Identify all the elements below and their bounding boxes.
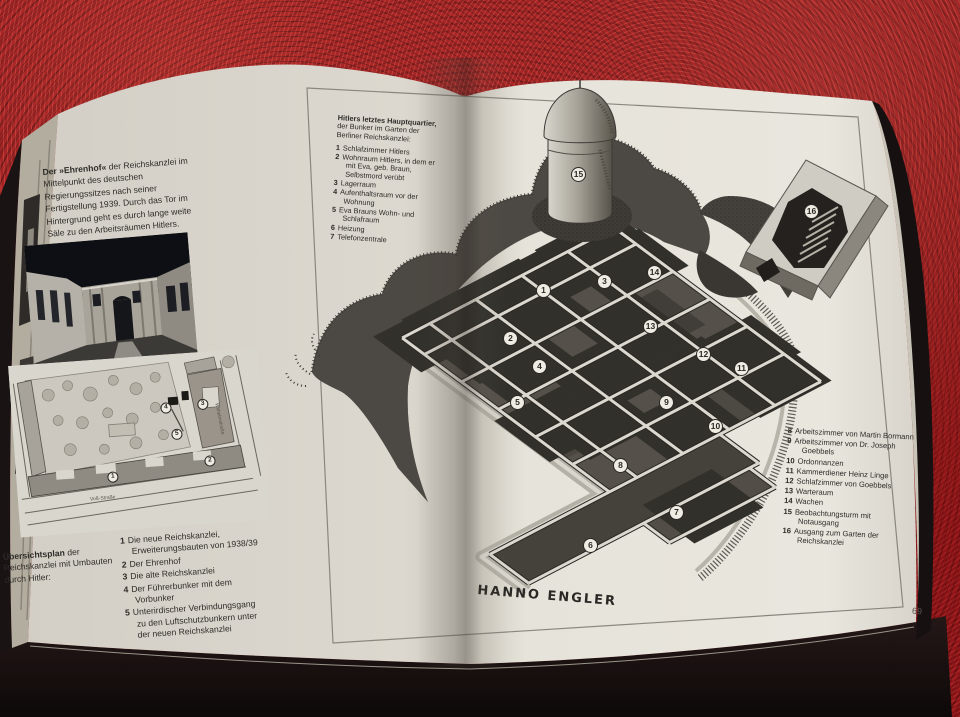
figure-marker: 4 (532, 359, 547, 374)
figure-marker: 10 (708, 419, 723, 434)
figure-marker: 14 (647, 265, 662, 280)
figure-marker: 16 (804, 204, 819, 219)
reichskanzlei-site-plan: Voß-Straße Wilhelmstraße 12345 (8, 348, 270, 538)
map-legend: Übersichtsplan der Reichskanzlei mit Umb… (2, 526, 267, 654)
photo-of-open-book: Voß-Straße Wilhelmstraße 12345 Der »Ehre… (0, 0, 960, 717)
figure-marker: 11 (734, 361, 749, 376)
map-legend-heading: Übersichtsplan der Reichskanzlei mit Umb… (3, 544, 117, 586)
garden-exit-structure (697, 160, 888, 300)
figure-legend-1-7: Hitlers letztes Hauptquartier, der Bunke… (330, 114, 446, 249)
figure-marker: 8 (613, 458, 628, 473)
figure-marker: 5 (510, 395, 525, 410)
figure-marker: 3 (597, 274, 612, 289)
figure-marker: 15 (571, 167, 586, 182)
figure-marker: 2 (503, 331, 518, 346)
map-legend-items: 1Die neue Reichskanzlei, Erweiterungsbau… (120, 526, 267, 643)
page-number: 69 (912, 606, 923, 617)
ehrenhof-photo (24, 232, 198, 371)
ehrenhof-caption: Der »Ehrenhof« der Reichskanzlei im Mitt… (42, 153, 207, 240)
figure-marker: 6 (583, 538, 598, 553)
figure-marker: 13 (643, 319, 658, 334)
figure-legend-heading: Hitlers letztes Hauptquartier, der Bunke… (336, 114, 445, 146)
figure-marker: 1 (536, 283, 551, 298)
figure-marker: 9 (659, 395, 674, 410)
figure-marker: 7 (669, 505, 684, 520)
figure-marker: 12 (696, 347, 711, 362)
figure-legend-8-16: 8Arbeitszimmer von Martin Bormann9Arbeit… (782, 426, 916, 552)
